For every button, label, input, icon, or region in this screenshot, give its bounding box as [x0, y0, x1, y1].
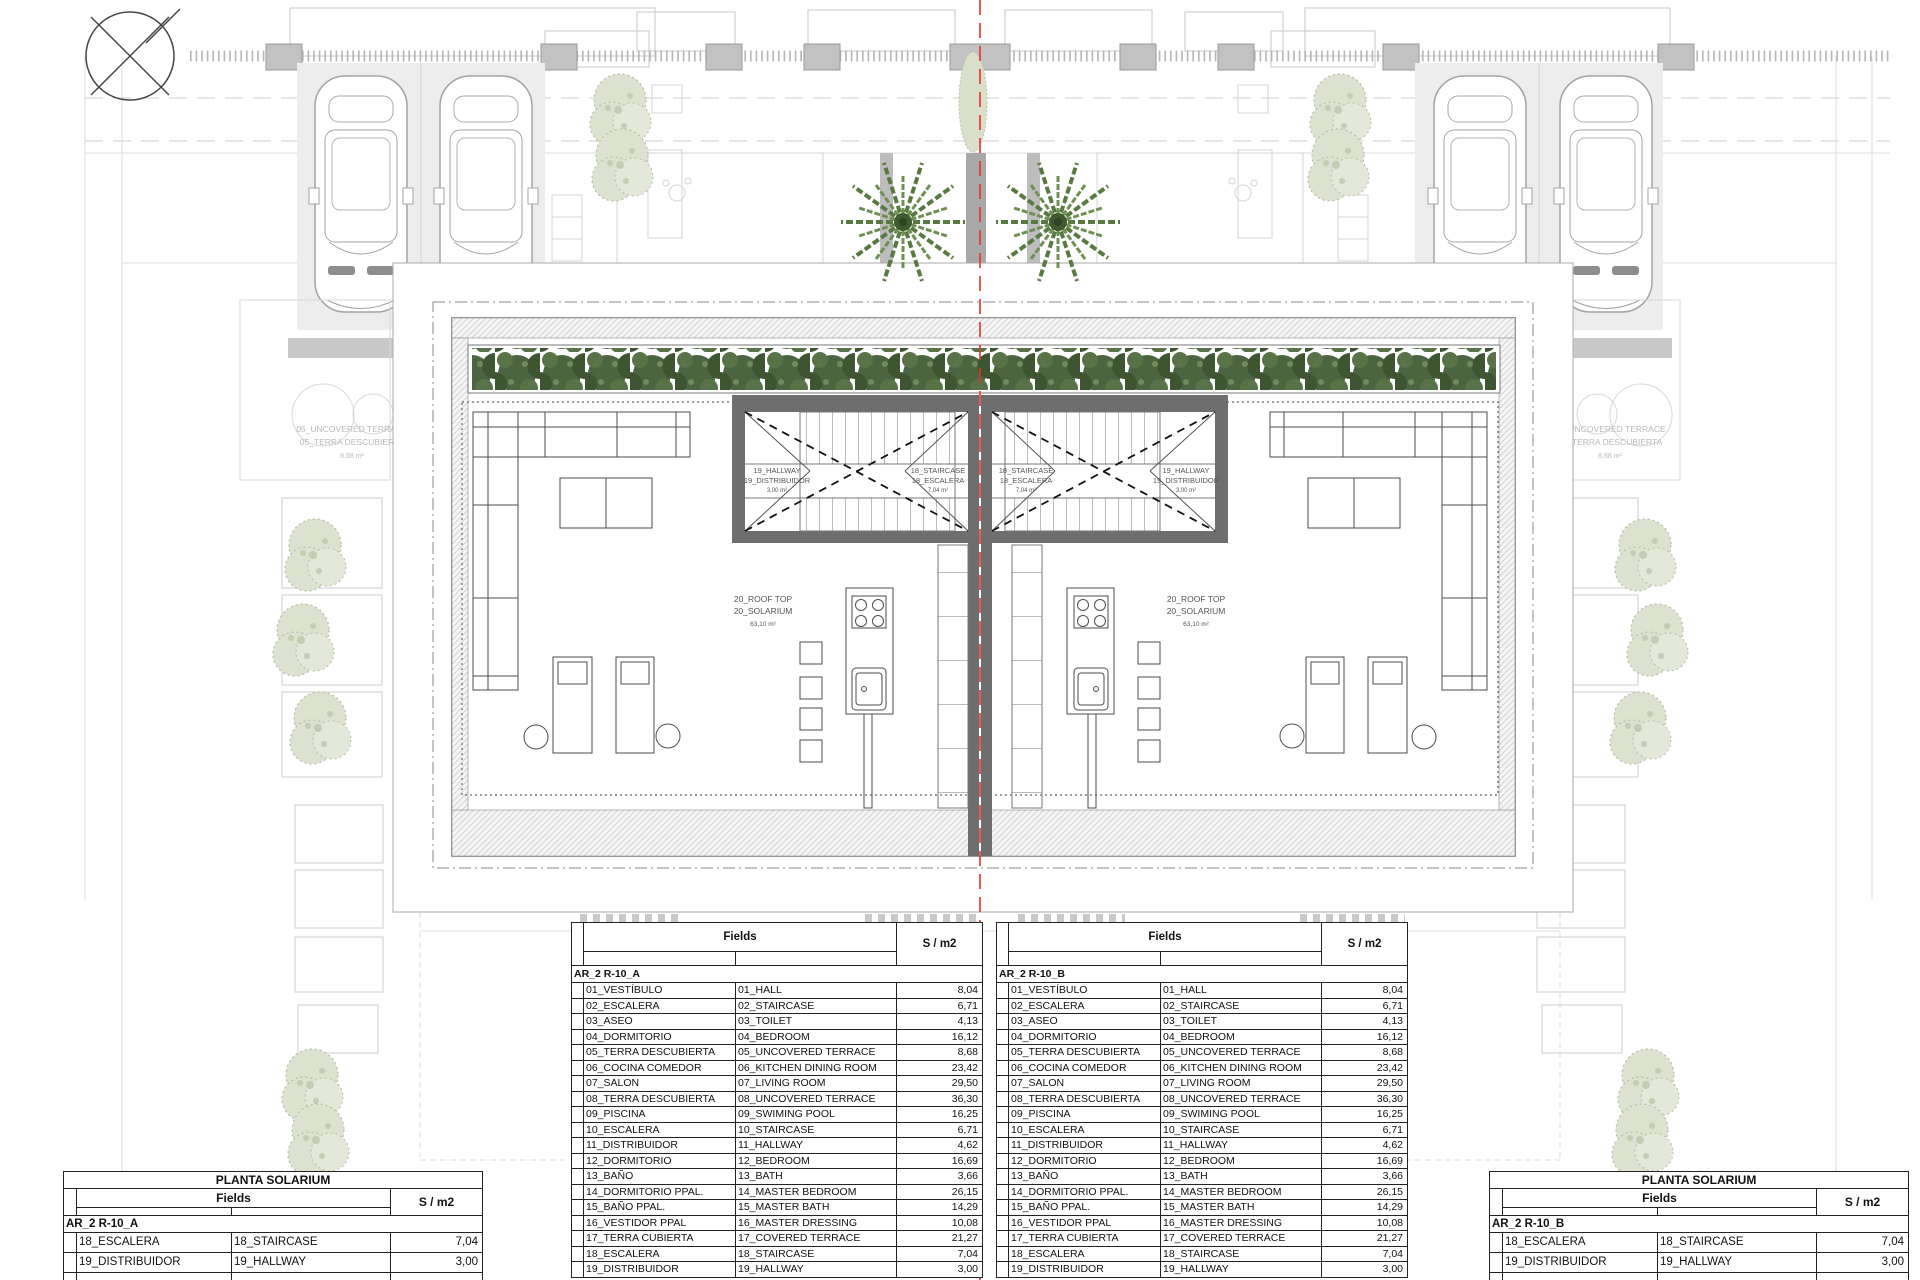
table-row: 09_PISCINA09_SWIMING POOL16,25: [997, 1107, 1408, 1123]
table-row: 01_VESTÍBULO01_HALL8,04: [997, 983, 1408, 999]
terrace-note-line: 8,68 m²: [1598, 453, 1622, 460]
table-row: 16_VESTIDOR PPAL16_MASTER DRESSING10,08: [572, 1215, 983, 1231]
table-row: 18_ESCALERA18_STAIRCASE7,04: [572, 1246, 983, 1262]
table-row: 01_VESTÍBULO01_HALL8,04: [572, 983, 983, 999]
staircase-area: 7,04 m²: [928, 488, 948, 494]
table-row: 17_TERRA CUBIERTA17_COVERED TERRACE21,27: [997, 1231, 1408, 1247]
tree: [1610, 692, 1671, 764]
table-row: 18_ESCALERA18_STAIRCASE7,04: [1490, 1233, 1909, 1253]
table-row: 09_PISCINA09_SWIMING POOL16,25: [572, 1107, 983, 1123]
staircase-label: 18_STAIRCASE: [911, 466, 965, 475]
tree: [288, 1104, 349, 1176]
hallway-label: 19_HALLWAY: [754, 466, 801, 475]
area-table-unit-b: Fields S / m2 AR_2 R-10_B 01_VESTÍBULO01…: [996, 922, 1408, 1278]
rooftop-label: 20_ROOF TOP: [734, 594, 793, 604]
table-row: [1490, 1273, 1909, 1280]
solarium-table-unit-a: PLANTA SOLARIUM Fields S / m2 AR_2 R-10_…: [63, 1171, 483, 1280]
fields-header: Fields: [1503, 1189, 1817, 1208]
table-row: 10_ESCALERA10_STAIRCASE6,71: [997, 1122, 1408, 1138]
tree: [1627, 604, 1688, 676]
fields-header: Fields: [77, 1189, 391, 1208]
rooftop-label: 20_SOLARIUM: [1167, 606, 1226, 616]
floor-plan-sheet: 05_UNCOVERED TERRACE 05_TERRA DESCUBIERT…: [0, 0, 1920, 1280]
table-row: 05_TERRA DESCUBIERTA05_UNCOVERED TERRACE…: [572, 1045, 983, 1061]
table-row: 15_BAÑO PPAL.15_MASTER BATH14,29: [572, 1200, 983, 1216]
rooftop-label: 20_ROOF TOP: [1167, 594, 1226, 604]
table-row: 11_DISTRIBUIDOR11_HALLWAY4,62: [997, 1138, 1408, 1154]
table-row: 02_ESCALERA02_STAIRCASE6,71: [997, 998, 1408, 1014]
table-row: 11_DISTRIBUIDOR11_HALLWAY4,62: [572, 1138, 983, 1154]
terrace-note-line: 8,68 m²: [340, 453, 364, 460]
unit-group-label: AR_2 R-10_A: [64, 1216, 483, 1233]
cypress-tree: [959, 52, 987, 152]
table-row: 17_TERRA CUBIERTA17_COVERED TERRACE21,27: [572, 1231, 983, 1247]
table-row: 15_BAÑO PPAL.15_MASTER BATH14,29: [997, 1200, 1408, 1216]
unit-group-label: AR_2 R-10_B: [997, 966, 1408, 983]
table-row: 02_ESCALERA02_STAIRCASE6,71: [572, 998, 983, 1014]
tree: [592, 129, 653, 201]
table-row: 19_DISTRIBUIDOR19_HALLWAY3,00: [997, 1262, 1408, 1278]
hallway-label: 19_DISTRIBUIDOR: [744, 476, 811, 485]
area-header: S / m2: [391, 1189, 483, 1216]
table-row: 13_BAÑO13_BATH3,66: [572, 1169, 983, 1185]
table-row: 16_VESTIDOR PPAL16_MASTER DRESSING10,08: [997, 1215, 1408, 1231]
table-row: 04_DORMITORIO04_BEDROOM16,12: [572, 1029, 983, 1045]
table-title: PLANTA SOLARIUM: [64, 1172, 483, 1189]
north-arrow-icon: [86, 9, 180, 100]
table-row: 05_TERRA DESCUBIERTA05_UNCOVERED TERRACE…: [997, 1045, 1408, 1061]
table-row: 06_COCINA COMEDOR06_KITCHEN DINING ROOM2…: [997, 1060, 1408, 1076]
hallway-area: 3,00 m²: [1176, 488, 1196, 494]
rooftop-area: 63,10 m²: [750, 621, 776, 628]
staircase-area: 7,04 m²: [1016, 488, 1036, 494]
table-row: 14_DORMITORIO PPAL.14_MASTER BEDROOM26,1…: [572, 1184, 983, 1200]
table-row: 06_COCINA COMEDOR06_KITCHEN DINING ROOM2…: [572, 1060, 983, 1076]
tree: [290, 692, 351, 764]
solarium-table-unit-b: PLANTA SOLARIUM Fields S / m2 AR_2 R-10_…: [1489, 1171, 1909, 1280]
staircase-label: 18_STAIRCASE: [999, 466, 1053, 475]
area-header: S / m2: [1817, 1189, 1909, 1216]
hallway-area: 3,00 m²: [767, 488, 787, 494]
solarium-table-body: 18_ESCALERA18_STAIRCASE7,0419_DISTRIBUID…: [64, 1233, 483, 1280]
table-row: 13_BAÑO13_BATH3,66: [997, 1169, 1408, 1185]
wall-storage: [1012, 545, 1042, 808]
table-row: 08_TERRA DESCUBIERTA08_UNCOVERED TERRACE…: [572, 1091, 983, 1107]
table-row: 07_SALON07_LIVING ROOM29,50: [997, 1076, 1408, 1092]
table-row: 07_SALON07_LIVING ROOM29,50: [572, 1076, 983, 1092]
fields-header: Fields: [584, 923, 897, 952]
staircase-label: 18_ESCALERA: [1000, 476, 1053, 485]
table-row: 12_DORMITORIO12_BEDROOM16,69: [572, 1153, 983, 1169]
table-row: 08_TERRA DESCUBIERTA08_UNCOVERED TERRACE…: [997, 1091, 1408, 1107]
fields-header: Fields: [1009, 923, 1322, 952]
table-row: 03_ASEO03_TOILET4,13: [572, 1014, 983, 1030]
table-row: 10_ESCALERA10_STAIRCASE6,71: [572, 1122, 983, 1138]
plan-panel: 19_HALLWAY 19_DISTRIBUIDOR 3,00 m² 18_ST…: [393, 263, 1573, 912]
solarium-table-body: 18_ESCALERA18_STAIRCASE7,0419_DISTRIBUID…: [1490, 1233, 1909, 1280]
table-row: [64, 1273, 483, 1280]
table-row: 19_DISTRIBUIDOR19_HALLWAY3,00: [572, 1262, 983, 1278]
terrace-note-line: 05_TERRA DESCUBIERTA: [300, 437, 405, 447]
table-row: 19_DISTRIBUIDOR19_HALLWAY3,00: [64, 1253, 483, 1273]
unit-group-label: AR_2 R-10_A: [572, 966, 983, 983]
tree: [285, 519, 346, 591]
table-row: 04_DORMITORIO04_BEDROOM16,12: [997, 1029, 1408, 1045]
table-row: 19_DISTRIBUIDOR19_HALLWAY3,00: [1490, 1253, 1909, 1273]
area-table-body: 01_VESTÍBULO01_HALL8,0402_ESCALERA02_STA…: [997, 983, 1408, 1278]
rooftop-label: 20_SOLARIUM: [734, 606, 793, 616]
table-row: 18_ESCALERA18_STAIRCASE7,04: [64, 1233, 483, 1253]
area-table-body: 01_VESTÍBULO01_HALL8,0402_ESCALERA02_STA…: [572, 983, 983, 1278]
hallway-label: 19_HALLWAY: [1163, 466, 1210, 475]
table-title: PLANTA SOLARIUM: [1490, 1172, 1909, 1189]
table-row: 14_DORMITORIO PPAL.14_MASTER BEDROOM26,1…: [997, 1184, 1408, 1200]
area-table-unit-a: Fields S / m2 AR_2 R-10_A 01_VESTÍBULO01…: [571, 922, 983, 1278]
area-header: S / m2: [1322, 923, 1408, 966]
hedge-planter: [468, 345, 1500, 393]
tree: [1615, 519, 1676, 591]
wall-storage: [938, 545, 968, 808]
area-header: S / m2: [897, 923, 983, 966]
hallway-label: 19_DISTRIBUIDOR: [1153, 476, 1220, 485]
table-row: 12_DORMITORIO12_BEDROOM16,69: [997, 1153, 1408, 1169]
tree: [273, 604, 334, 676]
staircase-label: 18_ESCALERA: [912, 476, 965, 485]
table-row: 03_ASEO03_TOILET4,13: [997, 1014, 1408, 1030]
terrace-note-line: 05_UNCOVERED TERRACE: [296, 424, 408, 434]
rooftop-area: 63,10 m²: [1183, 621, 1209, 628]
unit-group-label: AR_2 R-10_B: [1490, 1216, 1909, 1233]
table-row: 18_ESCALERA18_STAIRCASE7,04: [997, 1246, 1408, 1262]
hedge: [472, 348, 1496, 390]
